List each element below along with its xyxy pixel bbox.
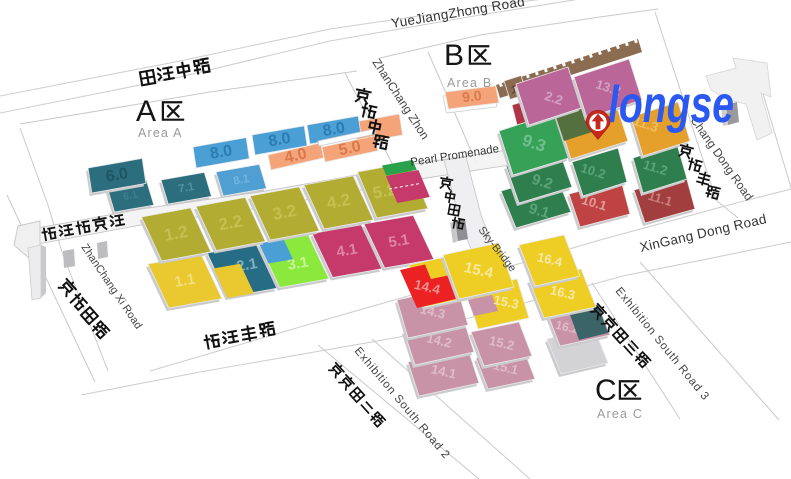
- svg-text:Area B: Area B: [447, 76, 492, 90]
- svg-text:C: C: [595, 374, 617, 407]
- svg-text:A: A: [136, 95, 156, 128]
- svg-text:B: B: [444, 39, 464, 72]
- svg-text:1.1: 1.1: [173, 271, 196, 291]
- svg-text:4.1: 4.1: [335, 240, 358, 260]
- svg-text:5.1: 5.1: [387, 231, 410, 251]
- svg-text:Area C: Area C: [597, 407, 643, 421]
- svg-text:longse: longse: [608, 76, 734, 134]
- svg-text:Area A: Area A: [138, 126, 183, 140]
- svg-text:6.1: 6.1: [122, 189, 139, 203]
